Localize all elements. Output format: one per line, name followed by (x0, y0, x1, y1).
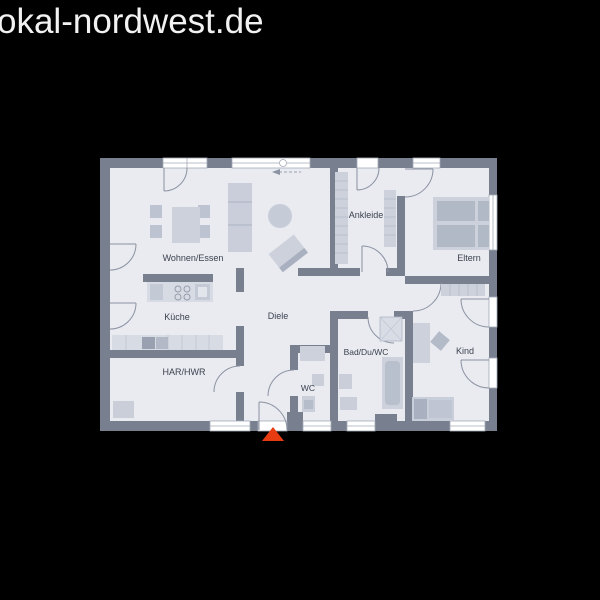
bathtub (382, 357, 403, 409)
label-kind: Kind (456, 346, 474, 356)
wardrobe-left (335, 172, 348, 264)
toilet-wc (302, 396, 315, 412)
wall-pier-entrance (287, 412, 303, 431)
double-bed (433, 197, 489, 250)
fridge (150, 284, 163, 300)
wardrobe-right (384, 190, 396, 247)
wall-stub-kueche-bottom (236, 326, 244, 358)
wall-stub-kueche-top (236, 268, 244, 292)
wall-kueche-har (110, 350, 236, 358)
pillow (478, 201, 489, 221)
single-bed (412, 397, 454, 421)
dishwasher (156, 337, 168, 349)
pillow (414, 399, 427, 419)
label-wohnen-essen: Wohnen/Essen (163, 253, 224, 263)
wall-ankleide-bottom-b (386, 268, 405, 276)
wall-wohnen-kueche (143, 274, 213, 282)
label-bad-du-wc: Bad/Du/WC (344, 347, 389, 357)
label-kueche: Küche (164, 312, 190, 322)
shower (380, 317, 402, 341)
wc-cabinet (300, 346, 325, 361)
pillow (478, 225, 489, 247)
wall-bad-top-a (338, 311, 368, 319)
oven (142, 337, 155, 349)
label-ankleide: Ankleide (349, 210, 384, 220)
label-diele: Diele (268, 311, 289, 321)
dining-table (172, 207, 200, 243)
dining-chair (150, 205, 162, 218)
wall-har-right-b (236, 392, 244, 422)
wall-left (100, 158, 110, 431)
wall-har-right-a (236, 358, 244, 366)
desk (413, 323, 430, 363)
rug (268, 204, 292, 228)
wall-pier-bad-kind (375, 414, 397, 431)
window-door-kind-1 (489, 297, 497, 327)
wall-wc-bad (330, 311, 338, 422)
wall-eltern-bottom (405, 276, 489, 284)
wall-ankleide-bottom-a (298, 268, 360, 276)
watermark-title: okal-nordwest.de (0, 2, 264, 42)
utility-equipment (113, 401, 134, 418)
wardrobe-kind (441, 284, 485, 296)
kitchen-counter-top (147, 282, 213, 302)
label-eltern: Eltern (457, 253, 481, 263)
washbasin-bad (339, 374, 352, 389)
floor-plan: Wohnen/Essen Ankleide Eltern Küche Diele… (98, 150, 500, 446)
wall-ankleide-eltern (397, 196, 405, 272)
kitchen-counter-bottom (112, 335, 223, 350)
toilet-bad (340, 397, 357, 410)
label-wc: WC (301, 383, 315, 393)
bookshelf (228, 183, 252, 252)
sliding-door-marker-icon (280, 160, 287, 167)
wall-kind-left (405, 311, 413, 422)
dining-chair (150, 225, 162, 238)
door-opening-ankleide-top (357, 158, 378, 168)
wall-wc-left-a (290, 353, 298, 370)
label-har-hwr: HAR/HWR (163, 367, 206, 377)
window-door-kind-2 (489, 358, 497, 388)
